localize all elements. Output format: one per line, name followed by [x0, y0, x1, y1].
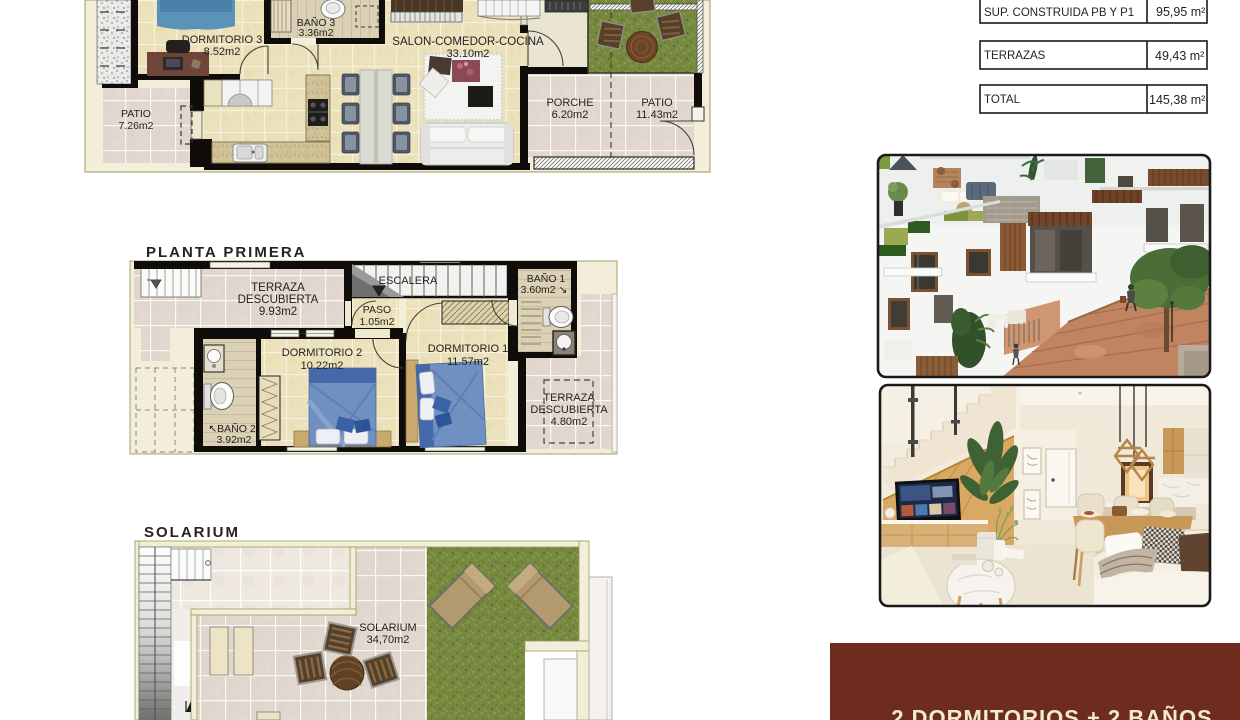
svg-text:PASO: PASO [363, 304, 391, 316]
svg-text:8.52m2: 8.52m2 [204, 46, 241, 58]
svg-text:4.80m2: 4.80m2 [551, 416, 588, 428]
svg-text:PORCHE: PORCHE [546, 97, 593, 109]
svg-text:DESCUBIERTA: DESCUBIERTA [238, 294, 319, 306]
svg-text:TERRAZA: TERRAZA [251, 282, 305, 294]
svg-text:ESCALERA: ESCALERA [379, 275, 438, 287]
svg-text:10.22m2: 10.22m2 [301, 360, 344, 372]
svg-text:7.26m2: 7.26m2 [118, 120, 153, 132]
svg-text:9.93m2: 9.93m2 [259, 306, 297, 318]
svg-text:DESCUBIERTA: DESCUBIERTA [530, 404, 608, 416]
svg-text:DORMITORIO 1: DORMITORIO 1 [428, 343, 508, 355]
svg-text:SOLARIUM: SOLARIUM [144, 524, 240, 541]
svg-text:DORMITORIO 2: DORMITORIO 2 [282, 347, 362, 359]
svg-text:49,43 m²: 49,43 m² [1155, 49, 1204, 63]
svg-text:PATIO: PATIO [121, 108, 151, 120]
svg-text:2 DORMITORIOS + 2 BAÑOS: 2 DORMITORIOS + 2 BAÑOS [891, 706, 1212, 720]
svg-text:PATIO: PATIO [641, 97, 673, 109]
svg-text:145,38 m²: 145,38 m² [1149, 93, 1205, 107]
svg-text:SALON-COMEDOR-COCINA: SALON-COMEDOR-COCINA [392, 36, 544, 48]
svg-text:TERRAZAS: TERRAZAS [984, 50, 1046, 62]
svg-text:3.92m2: 3.92m2 [216, 434, 251, 446]
svg-text:1.05m2: 1.05m2 [359, 316, 394, 328]
svg-text:95,95 m²: 95,95 m² [1156, 5, 1205, 19]
svg-text:33.10m2: 33.10m2 [447, 48, 490, 60]
svg-text:SUP. CONSTRUIDA PB Y P1: SUP. CONSTRUIDA PB Y P1 [984, 7, 1134, 19]
svg-text:SOLARIUM: SOLARIUM [359, 622, 416, 634]
svg-text:3.36m2: 3.36m2 [298, 27, 333, 39]
svg-text:TOTAL: TOTAL [984, 94, 1021, 106]
svg-text:11.43m2: 11.43m2 [636, 109, 678, 121]
svg-text:DORMITORIO 3: DORMITORIO 3 [182, 34, 262, 46]
svg-text:6.20m2: 6.20m2 [552, 109, 589, 121]
svg-text:PLANTA PRIMERA: PLANTA PRIMERA [146, 244, 307, 261]
svg-text:11.57m2: 11.57m2 [447, 356, 489, 368]
svg-text:TERRAZA: TERRAZA [543, 392, 595, 404]
svg-text:3.60m2 ↘: 3.60m2 ↘ [521, 284, 568, 296]
svg-text:34,70m2: 34,70m2 [367, 634, 410, 646]
